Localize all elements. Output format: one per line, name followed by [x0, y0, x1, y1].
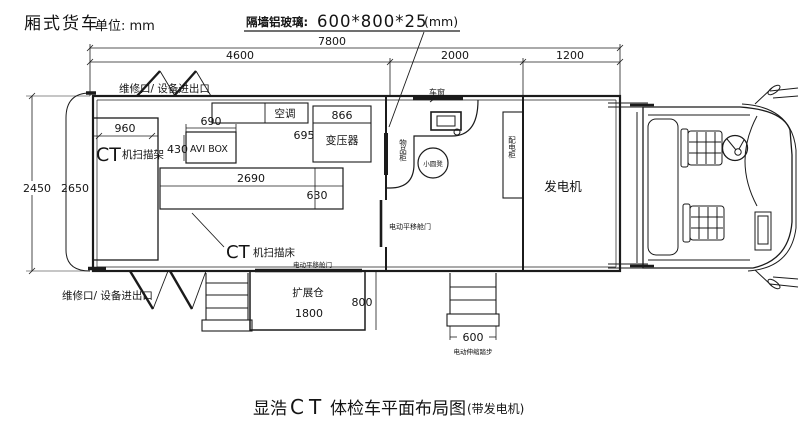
ct-frame-label: 机扫描架: [122, 148, 164, 161]
expansion-bay-label: 扩展仓: [292, 286, 324, 299]
dim-steps-width: 600: [463, 331, 484, 344]
dim-generator-room: 1200: [556, 49, 584, 62]
ct-bed-label: 机扫描床: [253, 246, 295, 259]
dim-scanner-frame-width: 960: [115, 122, 136, 135]
caption-prefix: 显浩: [253, 399, 287, 419]
ct-frame-prefix: CT: [96, 144, 121, 166]
unit-label: 单位: mm: [95, 19, 155, 34]
sliding-door-bottom-label: 电动平移舱门: [293, 260, 332, 269]
drawing-caption: 显浩 CT 体检车平面布局图 (带发电机): [253, 395, 524, 419]
ct-scanner-frame: [93, 118, 158, 260]
glass-spec-value: 600*800*25: [317, 12, 427, 31]
glass-leader-line: [389, 32, 424, 127]
caption-suffix: (带发电机): [467, 401, 524, 416]
floor-plan-drawing: 厢式货车 单位: mm 隔墙铝玻璃: 600*800*25 (mm) 7800 …: [0, 0, 800, 428]
storage-cabinet-label: 物品柜: [398, 138, 407, 163]
dim-transformer-width: 866: [332, 109, 353, 122]
glass-spec-unit: (mm): [424, 14, 458, 29]
dim-expansion-depth: 800: [352, 296, 373, 309]
air-conditioner-label: 空调: [275, 107, 296, 120]
stairs-left: [202, 273, 252, 331]
plan-canvas: 厢式货车 单位: mm 隔墙铝玻璃: 600*800*25 (mm) 7800 …: [0, 0, 800, 428]
telescopic-steps-label: 电动伸缩踏步: [454, 347, 494, 356]
glass-spec-label: 隔墙铝玻璃:: [246, 15, 308, 29]
vehicle-type-label: 厢式货车: [24, 14, 100, 34]
service-door-top-label: 维修口/ 设备进出口: [119, 82, 210, 95]
drawing-header: 厢式货车 单位: mm 隔墙铝玻璃: 600*800*25 (mm): [24, 12, 460, 127]
generator-label: 发电机: [544, 179, 582, 194]
dim-scan-room: 4600: [226, 49, 254, 62]
cab-drawing: [608, 84, 798, 291]
caption-main: 体检车平面布局图: [330, 399, 466, 419]
power-cabinet-label: 配电柜: [507, 136, 516, 160]
dim-body-width: 2450: [23, 182, 51, 195]
dim-transformer-depth: 695: [294, 129, 315, 142]
dim-bed-length: 2690: [237, 172, 265, 185]
dim-inner-width: 2650: [61, 182, 89, 195]
telescopic-steps: [447, 273, 499, 340]
ct-bed-prefix: CT: [226, 242, 251, 263]
dim-expansion-length: 1800: [295, 307, 323, 320]
transformer-label: 变压器: [326, 133, 359, 147]
dim-bed-width: 630: [307, 189, 328, 202]
caption-ct: CT: [290, 395, 326, 419]
dim-avi-box-width: 690: [201, 115, 222, 128]
avi-box-label: AVI BOX: [190, 144, 228, 155]
dim-operator-room: 2000: [441, 49, 469, 62]
operator-desk: [431, 112, 461, 135]
stool-label: 小圆凳: [423, 159, 443, 168]
service-door-bottom-label: 维修口/ 设备进出口: [62, 289, 153, 302]
dim-avi-box-depth: 430: [167, 143, 188, 156]
dim-total-length: 7800: [318, 35, 346, 48]
vehicle-window-label: 车窗: [429, 87, 445, 97]
sliding-door-side-label: 电动平移舱门: [389, 222, 431, 231]
partition-walls: [381, 96, 523, 271]
